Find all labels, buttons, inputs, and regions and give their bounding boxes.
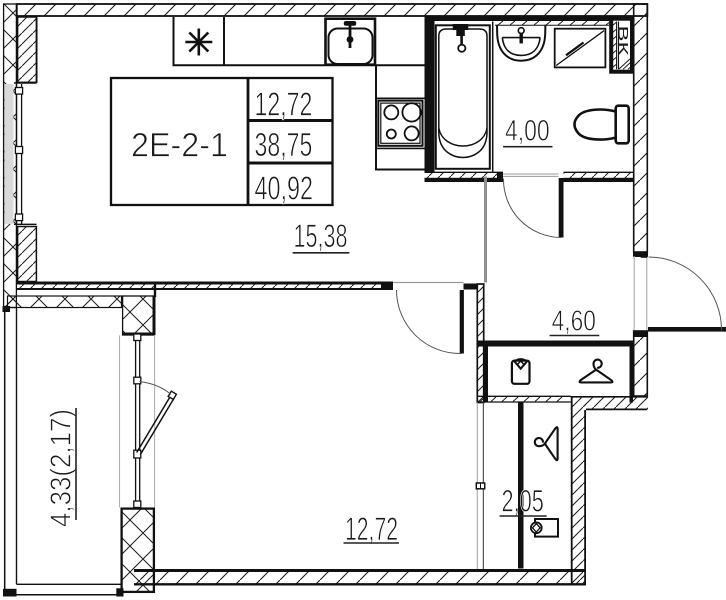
svg-text:12,72: 12,72 <box>255 87 313 124</box>
svg-text:4,33(2,17): 4,33(2,17) <box>46 409 78 527</box>
svg-text:4,60: 4,60 <box>552 305 596 337</box>
svg-text:40,92: 40,92 <box>255 171 314 208</box>
svg-text:ВК: ВК <box>616 26 631 56</box>
svg-text:38,75: 38,75 <box>255 127 313 164</box>
svg-text:2Е-2-1: 2Е-2-1 <box>131 126 228 164</box>
svg-text:4,00: 4,00 <box>505 114 550 147</box>
svg-text:15,38: 15,38 <box>294 218 348 254</box>
svg-text:12,72: 12,72 <box>345 511 398 547</box>
svg-text:2,05: 2,05 <box>502 482 544 518</box>
